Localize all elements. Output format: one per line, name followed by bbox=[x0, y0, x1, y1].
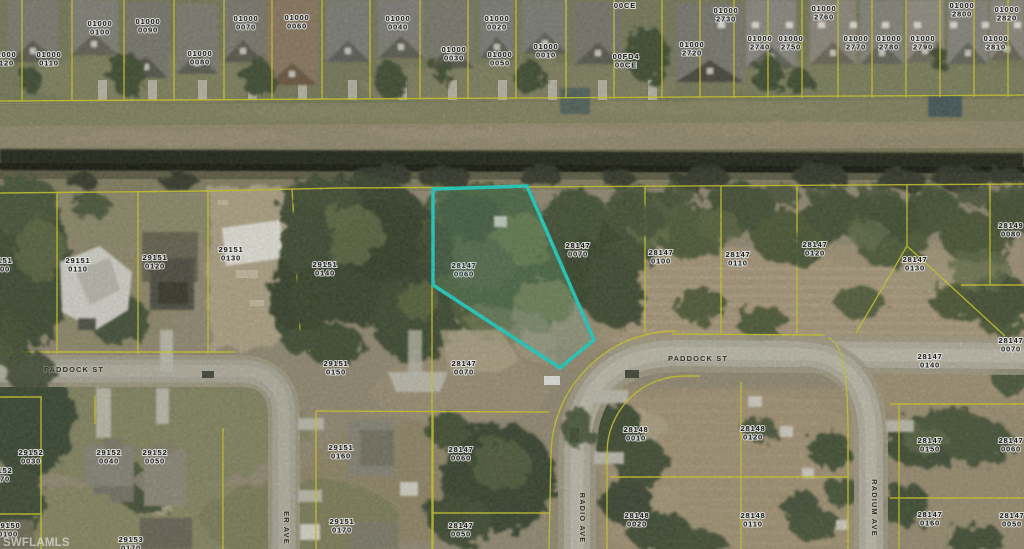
svg-text:SWFLAMLS: SWFLAMLS bbox=[3, 537, 70, 549]
